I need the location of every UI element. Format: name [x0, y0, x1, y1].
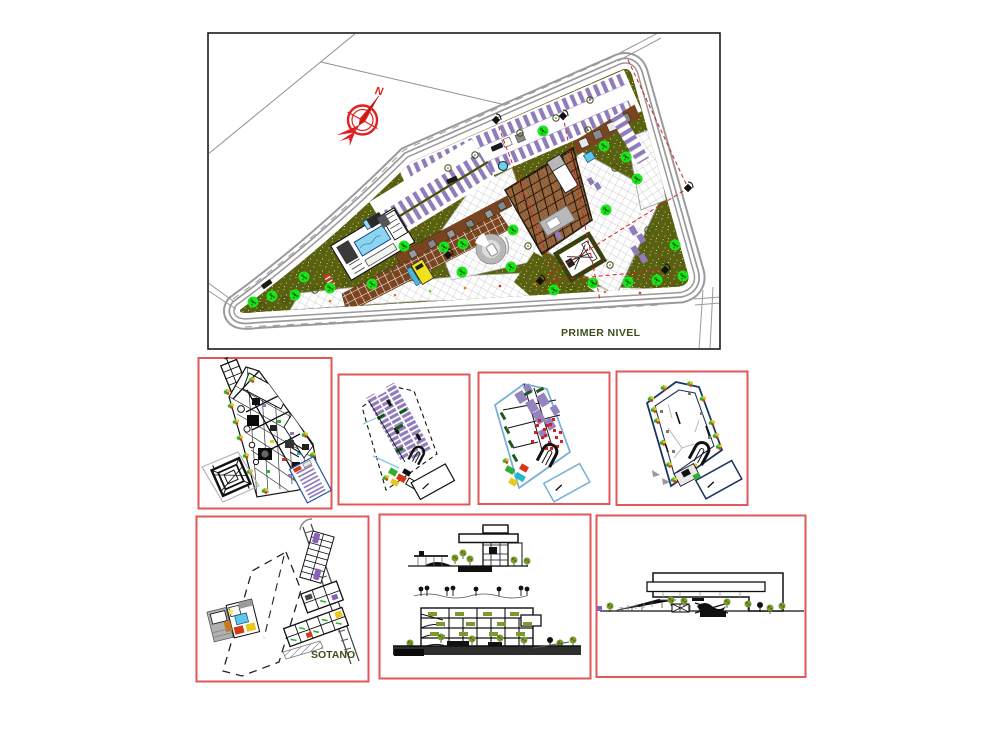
svg-text:PRIMER NIVEL: PRIMER NIVEL — [561, 327, 641, 339]
svg-text:SOTANO: SOTANO — [311, 649, 355, 661]
